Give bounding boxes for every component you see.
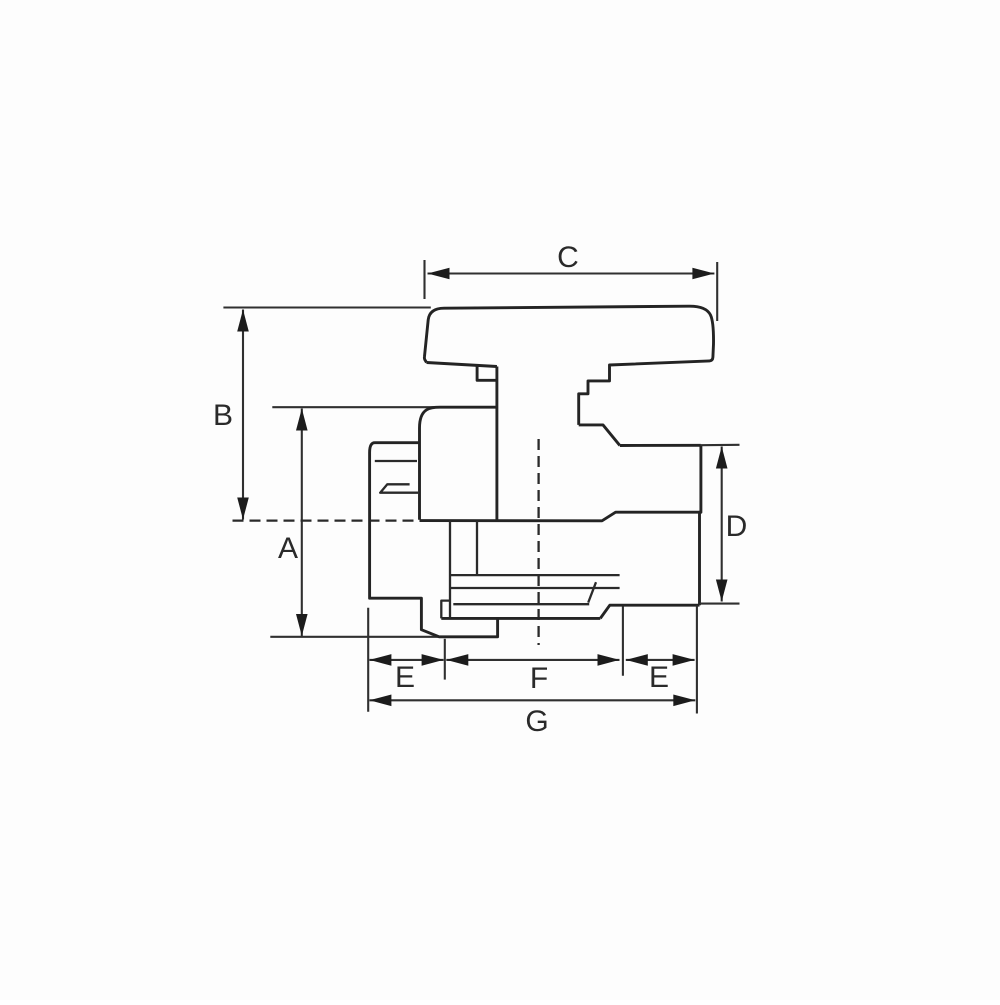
svg-text:E: E — [395, 661, 415, 694]
svg-text:A: A — [278, 532, 298, 565]
svg-text:E: E — [649, 661, 669, 694]
svg-text:C: C — [557, 241, 579, 274]
svg-text:D: D — [726, 510, 748, 543]
svg-text:B: B — [213, 399, 233, 432]
svg-text:F: F — [530, 662, 548, 695]
svg-text:G: G — [525, 705, 548, 738]
